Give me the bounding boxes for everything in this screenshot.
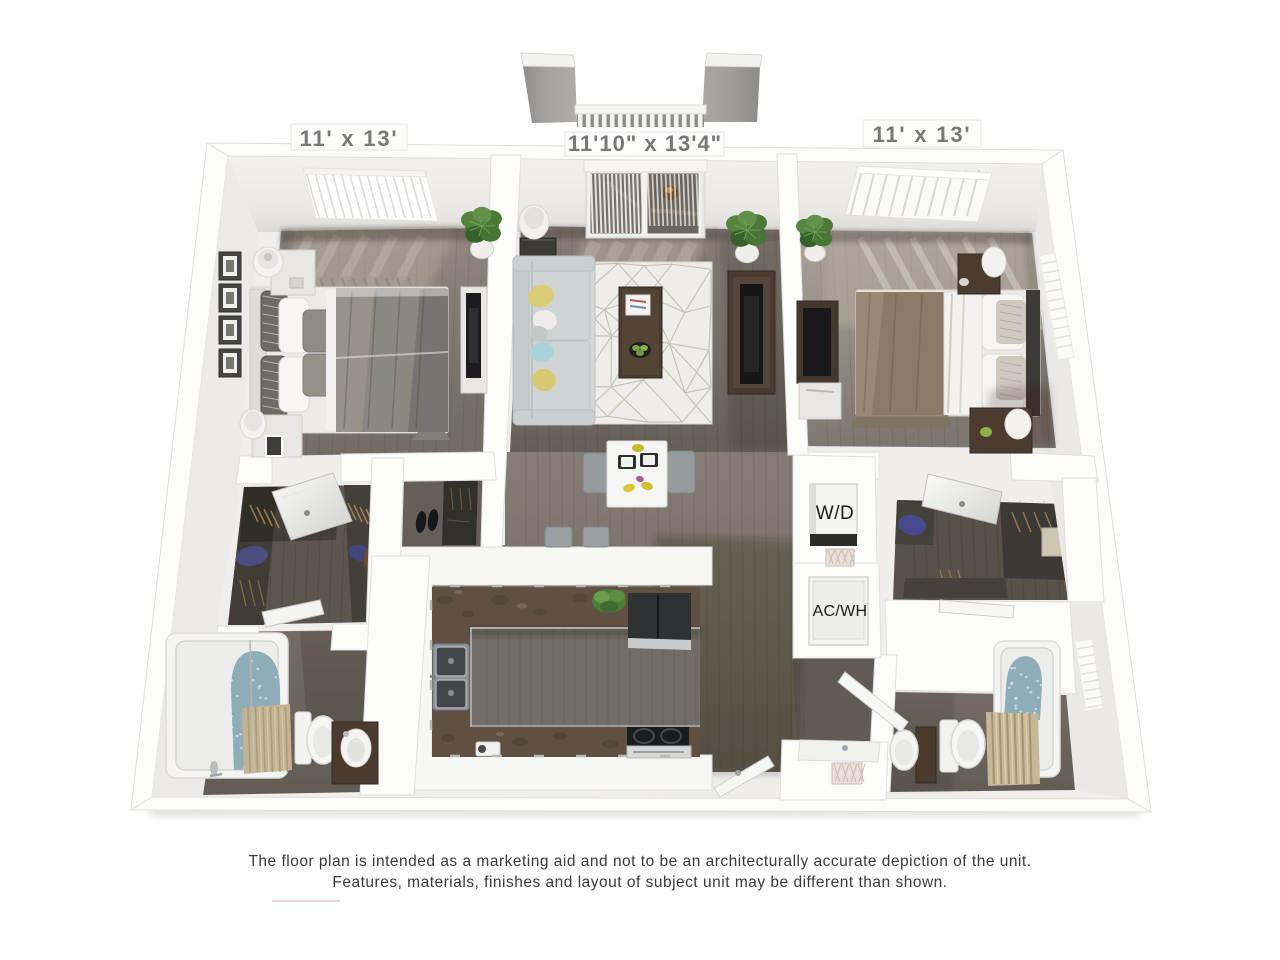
svg-text:W/D: W/D: [816, 503, 854, 524]
svg-text:11' x 13': 11' x 13': [873, 122, 972, 147]
svg-text:AC/WH: AC/WH: [813, 603, 868, 620]
svg-text:11' x 13': 11' x 13': [300, 126, 399, 151]
svg-text:11'10" x 13'4": 11'10" x 13'4": [568, 131, 722, 156]
